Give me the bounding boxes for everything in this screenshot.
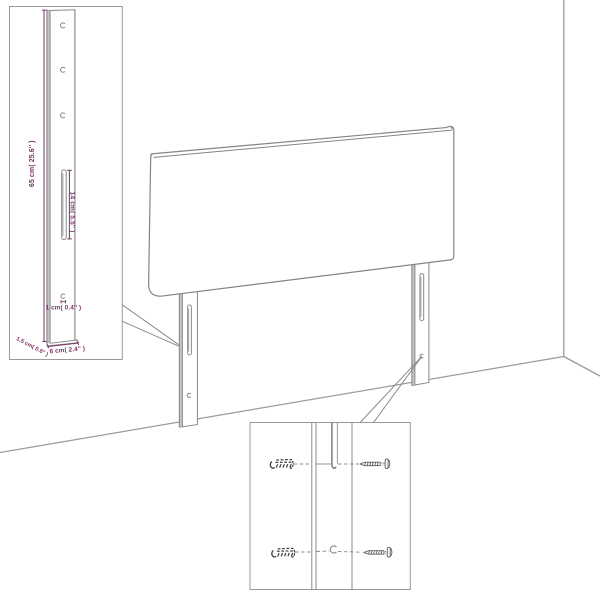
svg-text:1 cm( 0.4'' ): 1 cm( 0.4'' ) <box>46 304 82 311</box>
svg-text:65 cm( 25.6'' ): 65 cm( 25.6'' ) <box>29 140 36 187</box>
svg-text:14 cm( 5.5'' ): 14 cm( 5.5'' ) <box>69 191 76 232</box>
